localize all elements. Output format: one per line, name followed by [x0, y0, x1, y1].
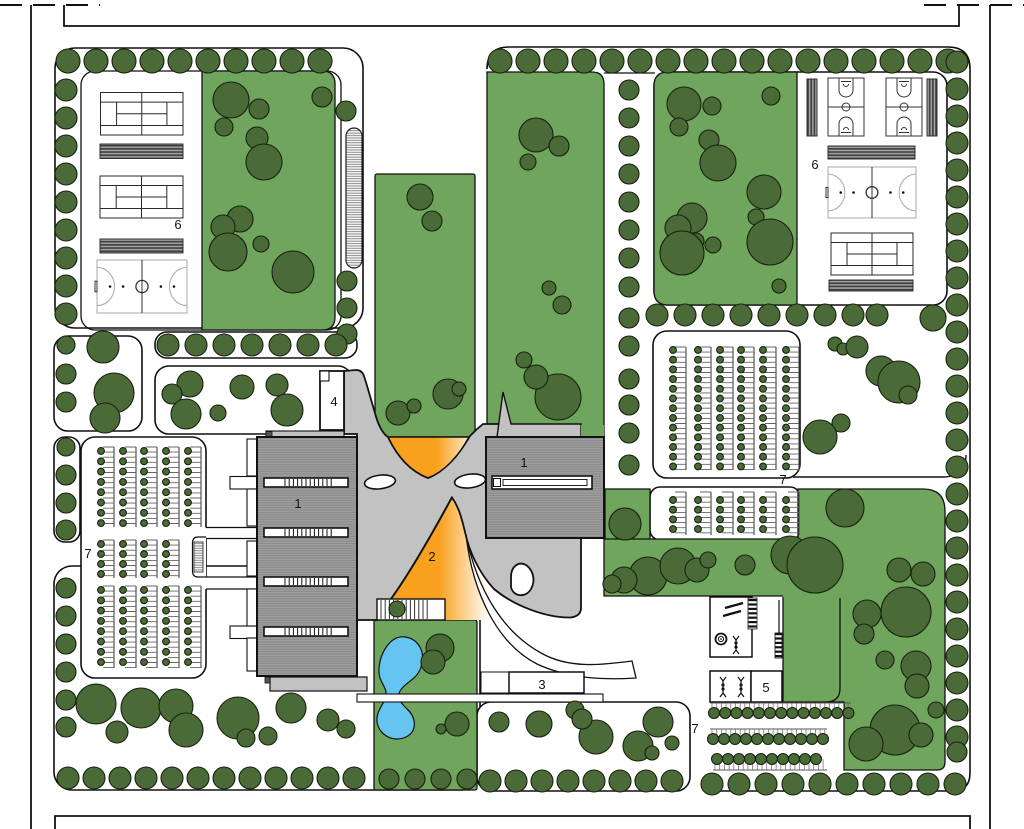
svg-text:7: 7 — [84, 546, 91, 561]
svg-text:3: 3 — [538, 677, 545, 692]
svg-text:7: 7 — [779, 472, 786, 487]
svg-text:4: 4 — [330, 394, 337, 409]
svg-text:2: 2 — [428, 549, 435, 564]
svg-text:5: 5 — [762, 680, 769, 695]
svg-text:6: 6 — [174, 217, 181, 232]
svg-text:6: 6 — [811, 157, 818, 172]
svg-text:1: 1 — [294, 496, 301, 511]
svg-text:1: 1 — [520, 455, 527, 470]
svg-text:7: 7 — [691, 721, 698, 736]
